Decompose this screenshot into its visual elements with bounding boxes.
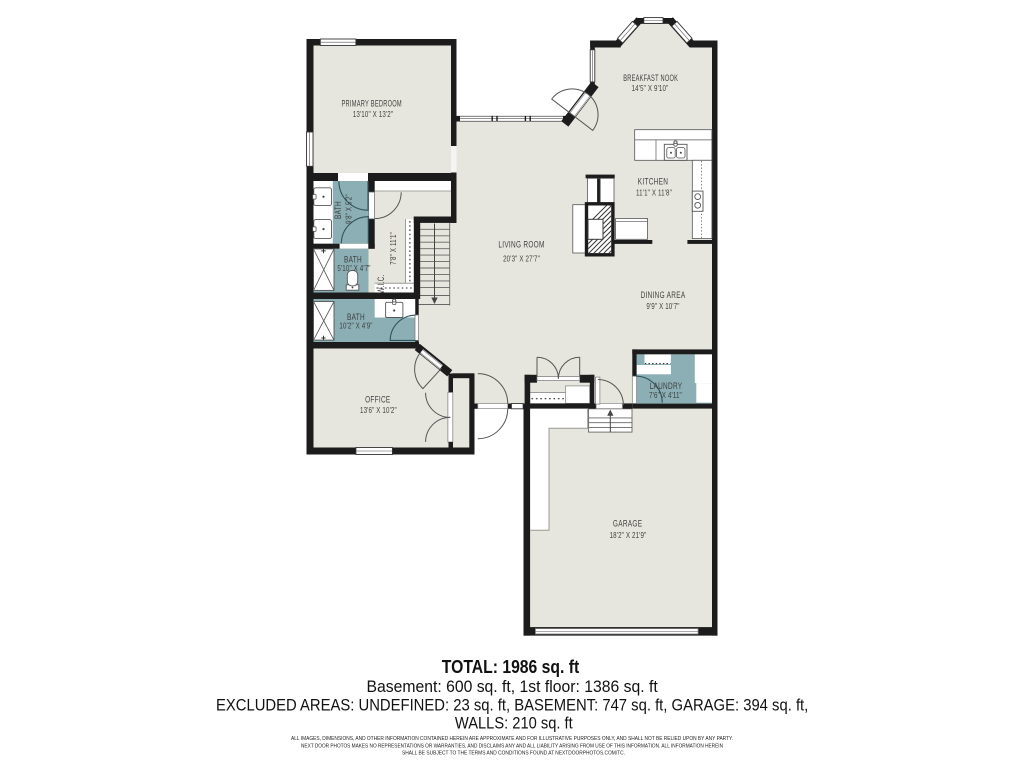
svg-text:BREAKFAST NOOK: BREAKFAST NOOK [623, 73, 678, 84]
svg-text:EXCLUDED AREAS: UNDEFINED: 23: EXCLUDED AREAS: UNDEFINED: 23 sq. ft, BA… [216, 697, 808, 715]
svg-text:14'5" X 9'10": 14'5" X 9'10" [632, 83, 669, 93]
svg-text:9'8" X 5'2": 9'8" X 5'2" [343, 194, 353, 224]
svg-text:13'10" X 13'2": 13'10" X 13'2" [353, 109, 394, 119]
svg-text:20'3" X 27'7": 20'3" X 27'7" [503, 253, 540, 263]
svg-text:7'8" X 11'1": 7'8" X 11'1" [388, 232, 398, 265]
svg-text:18'2" X 21'9": 18'2" X 21'9" [610, 530, 647, 540]
svg-text:11'1" X 11'8": 11'1" X 11'8" [636, 187, 672, 197]
svg-text:WALLS: 210 sq. ft: WALLS: 210 sq. ft [455, 715, 573, 733]
svg-text:SHALL BE SUBJECT TO THE TERMS: SHALL BE SUBJECT TO THE TERMS AND CONDIT… [402, 751, 625, 757]
svg-text:GARAGE: GARAGE [613, 519, 642, 529]
svg-text:13'6" X 10'2": 13'6" X 10'2" [360, 405, 397, 415]
svg-text:W.I.C.: W.I.C. [376, 274, 386, 293]
svg-text:9'9" X 10'7": 9'9" X 10'7" [646, 301, 679, 311]
svg-text:DINING AREA: DINING AREA [641, 290, 686, 300]
svg-text:KITCHEN: KITCHEN [638, 176, 668, 186]
svg-text:ALL IMAGES, DIMENSIONS, AND OT: ALL IMAGES, DIMENSIONS, AND OTHER INFORM… [291, 736, 733, 742]
svg-text:PRIMARY BEDROOM: PRIMARY BEDROOM [341, 98, 401, 109]
svg-text:LIVING ROOM: LIVING ROOM [498, 239, 544, 249]
svg-text:5'10" X 4'7": 5'10" X 4'7" [337, 263, 370, 273]
svg-text:TOTAL: 1986 sq. ft: TOTAL: 1986 sq. ft [442, 657, 579, 677]
svg-text:7'6" X 4'11": 7'6" X 4'11" [649, 390, 682, 400]
svg-text:OFFICE: OFFICE [365, 394, 390, 404]
svg-text:BATH: BATH [333, 201, 343, 219]
svg-text:NEXT DOOR PHOTOS MAKES NO REPR: NEXT DOOR PHOTOS MAKES NO REPRESENTATION… [301, 743, 723, 749]
svg-text:10'2" X 4'9": 10'2" X 4'9" [339, 321, 372, 331]
svg-text:Basement: 600 sq. ft, 1st floo: Basement: 600 sq. ft, 1st floor: 1386 sq… [367, 678, 659, 696]
